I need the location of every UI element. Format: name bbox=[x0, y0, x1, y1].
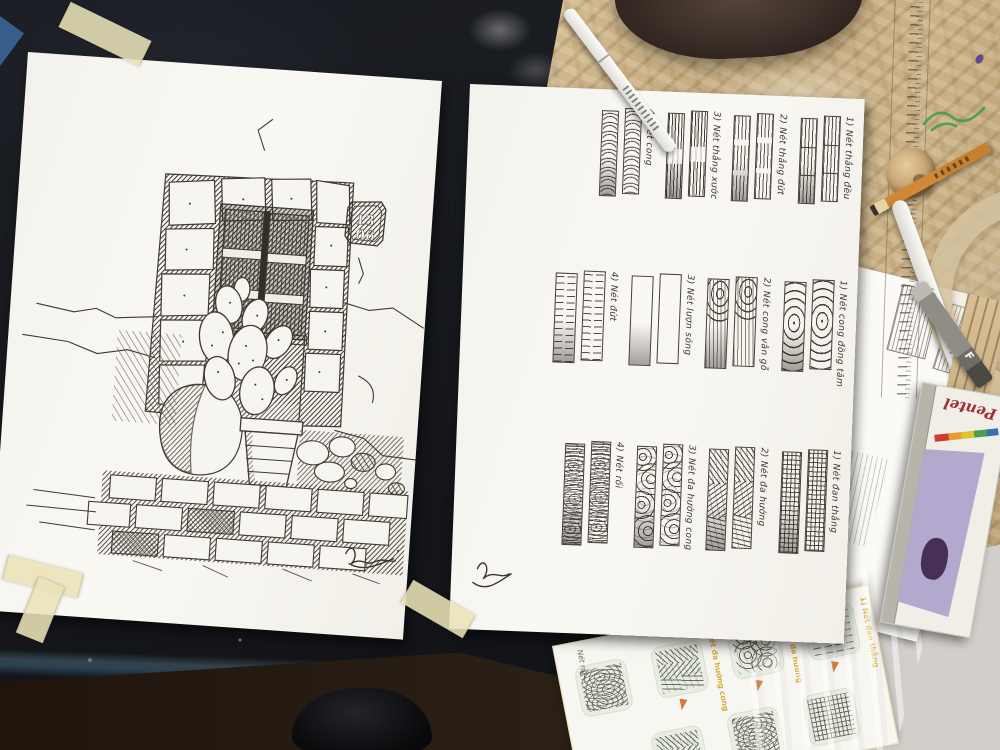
stroke-label: 2) Nét cong vân gỗ bbox=[758, 277, 772, 371]
stroke-swatch-bar bbox=[656, 273, 681, 364]
stroke-swatch-bar bbox=[731, 115, 751, 202]
stroke-swatch-bar bbox=[665, 113, 685, 200]
stroke-exercise-group: 3) Nét thẳng xước bbox=[665, 110, 722, 200]
stroke-swatch-bar bbox=[754, 113, 774, 200]
texture-cell bbox=[649, 639, 710, 700]
stroke-swatch-bar bbox=[781, 281, 806, 372]
stroke-swatch-pair bbox=[797, 115, 840, 202]
pen-cap-image bbox=[918, 536, 951, 582]
stroke-swatch-pair bbox=[552, 269, 605, 361]
exercise-row-1: 1) Nét thẳng đều 2) Nét thẳng đứt 3) Nét… bbox=[492, 103, 854, 205]
stroke-swatch-bar bbox=[778, 451, 802, 554]
stroke-label: 3) Nét lượn sóng bbox=[682, 274, 695, 355]
stroke-exercise-group: 4) Nét rối bbox=[561, 440, 624, 548]
stroke-swatch-bar bbox=[797, 118, 817, 205]
flower-pot bbox=[236, 418, 302, 488]
stroke-swatch-pair bbox=[731, 112, 774, 199]
pentel-brand-logo: Pentel bbox=[934, 392, 1000, 425]
stroke-swatch-pair bbox=[778, 448, 828, 552]
stroke-exercise-group: 2) Nét cong vân gỗ bbox=[704, 275, 771, 384]
stroke-swatch-bar bbox=[628, 275, 653, 366]
stroke-exercise-sheet: 1) Nét thẳng đều 2) Nét thẳng đứt 3) Nét… bbox=[449, 84, 865, 644]
texture-cell bbox=[650, 724, 711, 750]
stroke-exercise-group: 3) Nét đa hướng cong bbox=[633, 443, 696, 551]
scratch-hatch-patch bbox=[111, 330, 181, 425]
stroke-swatch-bar bbox=[598, 110, 618, 197]
stroke-exercise-group: 1) Nét thẳng đều bbox=[797, 115, 854, 205]
stroke-label: 3) Nét đa hướng cong bbox=[682, 445, 696, 551]
stroke-exercise-group: 3) Nét lượn sóng bbox=[628, 272, 695, 381]
texture-swatch bbox=[655, 730, 704, 750]
stroke-swatch-pair bbox=[628, 272, 681, 364]
stroke-swatch-bar bbox=[688, 111, 708, 198]
stroke-label: 3) Nét thẳng xước bbox=[708, 111, 722, 199]
stroke-swatch-bar bbox=[633, 446, 657, 549]
plaque-number-bottom: 06 bbox=[355, 227, 376, 244]
stroke-swatch-bar bbox=[733, 276, 758, 367]
exercise-row-2: 1) Nét cong đồng tâm 2) Nét cong vân gỗ … bbox=[485, 267, 848, 388]
artist-signature bbox=[462, 550, 516, 602]
stroke-swatch-pair bbox=[561, 440, 611, 544]
stroke-swatch-pair bbox=[665, 110, 708, 197]
stroke-label: 2) Nét đa hướng bbox=[756, 447, 769, 527]
stroke-swatch-bar bbox=[820, 116, 840, 203]
stroke-swatch-pair bbox=[781, 278, 834, 370]
stroke-swatch-bar bbox=[587, 441, 611, 544]
stroke-swatch-bar bbox=[732, 446, 756, 549]
stroke-exercise-group: 1) Nét đan thẳng bbox=[778, 448, 841, 556]
stroke-label: 4) Nét rối bbox=[612, 442, 624, 489]
stroke-label: 2) Nét thẳng đứt bbox=[774, 114, 787, 195]
stroke-swatch-bar bbox=[622, 108, 642, 195]
rainbow-stripe bbox=[934, 428, 998, 442]
stroke-swatch-bar bbox=[804, 449, 828, 552]
stroke-swatch-bar bbox=[809, 279, 834, 370]
stroke-swatch-bar bbox=[580, 270, 605, 361]
stroke-swatch-pair bbox=[633, 443, 683, 547]
stroke-exercise-group: 4) Nét đứt bbox=[551, 269, 618, 378]
stroke-exercise-group: 1) Nét cong đồng tâm bbox=[780, 278, 847, 387]
stroke-exercise-group: 2) Nét thẳng đứt bbox=[731, 112, 788, 202]
stroke-exercise-group: 2) Nét đa hướng bbox=[706, 445, 769, 553]
stroke-swatch-bar bbox=[659, 444, 683, 547]
stroke-swatch-pair bbox=[706, 445, 756, 549]
arrow-icon bbox=[678, 699, 688, 711]
cactus-window-drawing: 13 06 bbox=[0, 52, 442, 640]
texture-swatch bbox=[655, 644, 704, 693]
stroke-swatch-pair bbox=[705, 275, 758, 367]
stroke-label: 1) Nét đan thẳng bbox=[828, 450, 842, 533]
stroke-label: 1) Nét thẳng đều bbox=[840, 116, 854, 199]
workspace-photo: Bài 1: ĐƯỜNG NÉT A) BỘ NÉT THẲNG 1) Nét … bbox=[0, 0, 1000, 750]
stroke-label: 1) Nét cong đồng tâm bbox=[833, 280, 847, 387]
stroke-swatch-pair bbox=[599, 107, 642, 194]
stroke-swatch-bar bbox=[561, 443, 585, 546]
cactus-window-drawing-paper: 13 06 bbox=[0, 52, 442, 640]
stroke-swatch-bar bbox=[706, 448, 730, 551]
house-number-plaque: 13 06 bbox=[344, 200, 386, 247]
green-marker-scribble bbox=[918, 88, 990, 136]
stroke-swatch-bar bbox=[705, 278, 730, 369]
exercise-row-3: 1) Nét đan thẳng 2) Nét đa hướng 3) Nét … bbox=[478, 437, 841, 557]
marker-nib-size-label: F bbox=[962, 349, 977, 363]
stroke-label: 4) Nét đứt bbox=[607, 271, 619, 321]
stroke-swatch-bar bbox=[552, 272, 577, 363]
